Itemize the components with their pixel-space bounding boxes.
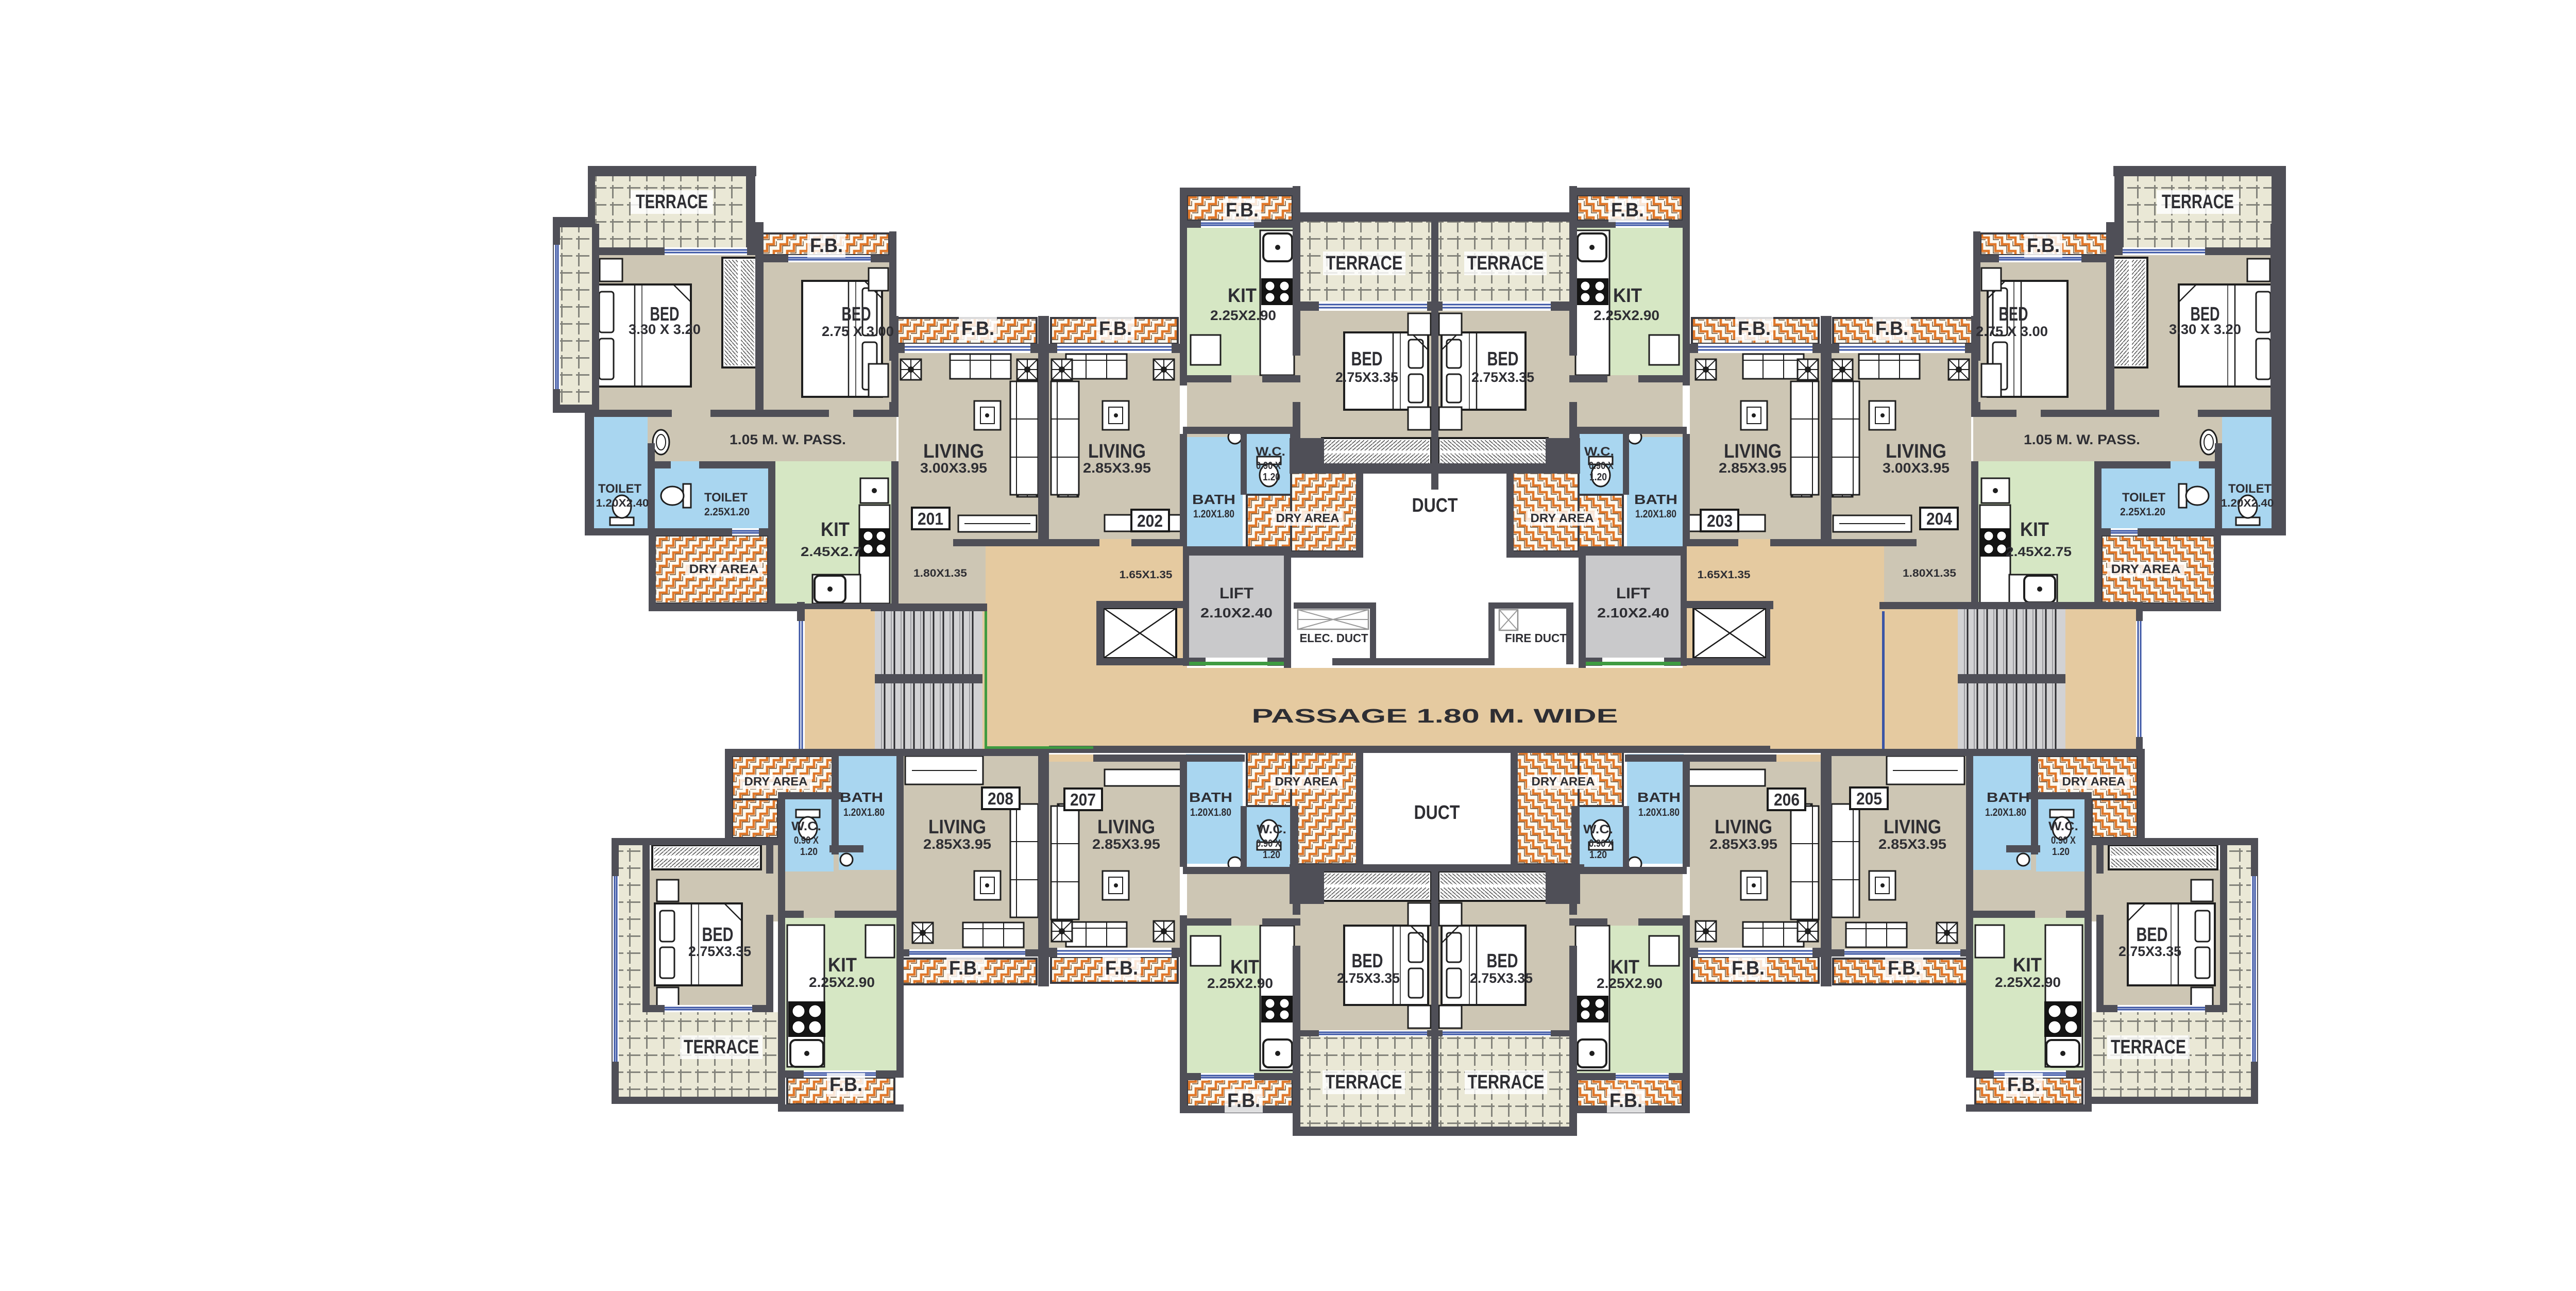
- svg-text:TERRACE: TERRACE: [1326, 253, 1403, 274]
- svg-text:LIVING: LIVING: [1715, 816, 1772, 838]
- svg-text:2.75X3.35: 2.75X3.35: [688, 944, 751, 959]
- svg-text:LIVING: LIVING: [1886, 441, 1946, 462]
- svg-text:DRY AREA: DRY AREA: [1532, 775, 1595, 788]
- svg-text:TOILET: TOILET: [2228, 482, 2272, 496]
- svg-text:TOILET: TOILET: [2122, 491, 2165, 505]
- svg-text:F.B.: F.B.: [1732, 958, 1765, 979]
- svg-text:1.05 M. W. PASS.: 1.05 M. W. PASS.: [730, 432, 846, 447]
- svg-text:1.20X2.40: 1.20X2.40: [2221, 497, 2274, 509]
- svg-text:0.90 X: 0.90 X: [1256, 460, 1281, 472]
- svg-text:1.05 M. W. PASS.: 1.05 M. W. PASS.: [2024, 432, 2140, 447]
- svg-text:DRY AREA: DRY AREA: [2111, 562, 2181, 576]
- svg-text:TERRACE: TERRACE: [2162, 191, 2234, 213]
- svg-text:1.20: 1.20: [2052, 846, 2070, 858]
- svg-text:3.00X3.95: 3.00X3.95: [1883, 460, 1950, 476]
- svg-text:KIT: KIT: [1611, 957, 1639, 978]
- svg-text:F.B.: F.B.: [2007, 1074, 2040, 1096]
- svg-text:204: 204: [1926, 509, 1953, 528]
- svg-text:2.75 X 3.00: 2.75 X 3.00: [822, 324, 894, 339]
- svg-text:KIT: KIT: [1230, 957, 1259, 978]
- svg-text:1.20X1.80: 1.20X1.80: [1193, 508, 1234, 520]
- svg-text:202: 202: [1137, 511, 1163, 530]
- svg-text:ELEC. DUCT: ELEC. DUCT: [1300, 631, 1368, 645]
- svg-text:TERRACE: TERRACE: [1326, 1071, 1402, 1093]
- svg-text:3.30 X 3.20: 3.30 X 3.20: [2169, 322, 2241, 337]
- svg-text:TERRACE: TERRACE: [1468, 1071, 1545, 1093]
- svg-text:1.65X1.35: 1.65X1.35: [1120, 569, 1173, 581]
- svg-text:BATH: BATH: [1189, 790, 1232, 805]
- svg-text:2.25X2.90: 2.25X2.90: [809, 975, 875, 990]
- svg-text:2.75X3.35: 2.75X3.35: [1470, 970, 1533, 986]
- svg-text:BED: BED: [842, 304, 871, 325]
- svg-text:TOILET: TOILET: [598, 482, 641, 496]
- svg-text:203: 203: [1707, 511, 1733, 530]
- svg-text:BATH: BATH: [1192, 492, 1235, 507]
- svg-text:0.90 X: 0.90 X: [2051, 835, 2076, 846]
- svg-text:TERRACE: TERRACE: [636, 191, 708, 213]
- svg-text:0.90 X: 0.90 X: [794, 835, 819, 846]
- svg-text:205: 205: [1856, 789, 1882, 808]
- svg-text:2.10X2.40: 2.10X2.40: [1200, 605, 1273, 621]
- svg-text:BED: BED: [1999, 304, 2028, 325]
- svg-text:207: 207: [1070, 790, 1096, 809]
- svg-text:W.C.: W.C.: [1583, 823, 1613, 836]
- svg-text:TERRACE: TERRACE: [2111, 1036, 2186, 1058]
- svg-text:2.25X1.20: 2.25X1.20: [704, 506, 750, 518]
- svg-text:3.30 X 3.20: 3.30 X 3.20: [629, 322, 701, 337]
- svg-text:2.75X3.35: 2.75X3.35: [1337, 970, 1400, 986]
- svg-text:TOILET: TOILET: [704, 491, 748, 505]
- svg-text:LIFT: LIFT: [1219, 585, 1253, 602]
- svg-text:2.25X2.90: 2.25X2.90: [1995, 975, 2061, 990]
- svg-text:F.B.: F.B.: [1611, 199, 1644, 221]
- svg-text:TERRACE: TERRACE: [1467, 253, 1544, 274]
- svg-text:2.85X3.95: 2.85X3.95: [1709, 836, 1777, 852]
- svg-text:F.B.: F.B.: [1888, 958, 1921, 979]
- svg-text:KIT: KIT: [2013, 954, 2042, 976]
- svg-text:2.25X2.90: 2.25X2.90: [1594, 308, 1659, 323]
- svg-text:LIVING: LIVING: [1088, 441, 1146, 462]
- svg-text:F.B.: F.B.: [949, 958, 982, 979]
- svg-text:LIVING: LIVING: [923, 441, 984, 462]
- svg-text:KIT: KIT: [2020, 519, 2049, 541]
- svg-text:1.20: 1.20: [800, 846, 818, 858]
- svg-text:2.25X1.20: 2.25X1.20: [2120, 506, 2165, 518]
- svg-text:2.85X3.95: 2.85X3.95: [1092, 836, 1160, 852]
- svg-text:W.C.: W.C.: [1256, 445, 1285, 459]
- svg-text:1.80X1.35: 1.80X1.35: [1903, 567, 1956, 579]
- svg-text:PASSAGE 1.80 M. WIDE: PASSAGE 1.80 M. WIDE: [1252, 706, 1618, 727]
- svg-text:DRY AREA: DRY AREA: [689, 562, 759, 576]
- svg-text:KIT: KIT: [821, 519, 850, 541]
- svg-text:2.10X2.40: 2.10X2.40: [1597, 605, 1669, 621]
- svg-text:KIT: KIT: [1228, 285, 1257, 307]
- svg-text:DRY AREA: DRY AREA: [1276, 511, 1340, 525]
- svg-text:W.C.: W.C.: [791, 819, 821, 833]
- svg-text:DRY AREA: DRY AREA: [744, 775, 808, 788]
- svg-text:W.C.: W.C.: [1257, 823, 1286, 836]
- svg-text:BED: BED: [1351, 348, 1383, 370]
- svg-text:LIVING: LIVING: [1097, 816, 1155, 838]
- svg-text:LIVING: LIVING: [928, 816, 986, 838]
- svg-text:BED: BED: [1487, 950, 1518, 972]
- svg-text:F.B.: F.B.: [810, 235, 843, 257]
- svg-text:1.20X1.80: 1.20X1.80: [1190, 807, 1231, 818]
- svg-text:2.45X2.75: 2.45X2.75: [2006, 545, 2072, 559]
- svg-text:F.B.: F.B.: [1227, 1090, 1260, 1112]
- svg-text:TERRACE: TERRACE: [684, 1036, 759, 1058]
- svg-text:3.00X3.95: 3.00X3.95: [920, 460, 987, 476]
- svg-text:FIRE DUCT: FIRE DUCT: [1505, 631, 1567, 645]
- svg-text:BED: BED: [1352, 950, 1383, 972]
- svg-text:1.20X1.80: 1.20X1.80: [1638, 807, 1680, 818]
- svg-text:DUCT: DUCT: [1412, 495, 1458, 516]
- svg-text:BATH: BATH: [1987, 790, 2030, 805]
- svg-text:F.B.: F.B.: [1105, 958, 1138, 979]
- svg-text:2.75X3.35: 2.75X3.35: [1335, 370, 1398, 385]
- svg-text:2.75X3.35: 2.75X3.35: [2119, 944, 2181, 959]
- svg-text:DRY AREA: DRY AREA: [2062, 775, 2126, 788]
- svg-text:2.85X3.95: 2.85X3.95: [1878, 836, 1946, 852]
- svg-text:2.25X2.90: 2.25X2.90: [1597, 976, 1663, 991]
- svg-text:LIFT: LIFT: [1616, 585, 1650, 602]
- svg-text:DRY AREA: DRY AREA: [1275, 775, 1338, 788]
- svg-text:1.20: 1.20: [1263, 849, 1280, 861]
- svg-text:F.B.: F.B.: [1875, 318, 1908, 340]
- svg-text:2.85X3.95: 2.85X3.95: [1719, 460, 1787, 476]
- svg-text:W.C.: W.C.: [1584, 445, 1614, 459]
- svg-text:LIVING: LIVING: [1724, 441, 1782, 462]
- svg-text:DRY AREA: DRY AREA: [1531, 511, 1594, 525]
- svg-text:F.B.: F.B.: [1099, 318, 1132, 340]
- svg-text:DUCT: DUCT: [1414, 802, 1460, 824]
- svg-text:LIVING: LIVING: [1884, 816, 1941, 838]
- svg-text:208: 208: [988, 789, 1013, 808]
- svg-text:1.20: 1.20: [1589, 472, 1607, 483]
- svg-text:BED: BED: [1487, 348, 1519, 370]
- svg-text:F.B.: F.B.: [1738, 318, 1771, 340]
- svg-text:1.20X1.80: 1.20X1.80: [843, 807, 885, 818]
- svg-text:2.85X3.95: 2.85X3.95: [923, 836, 991, 852]
- svg-text:BATH: BATH: [1634, 492, 1677, 507]
- svg-text:W.C.: W.C.: [2048, 819, 2078, 833]
- svg-text:1.20X2.40: 1.20X2.40: [596, 497, 649, 509]
- svg-text:F.B.: F.B.: [1609, 1090, 1642, 1112]
- svg-text:2.25X2.90: 2.25X2.90: [1210, 308, 1276, 323]
- svg-text:1.20: 1.20: [1263, 472, 1280, 483]
- svg-text:F.B.: F.B.: [829, 1074, 862, 1096]
- svg-text:1.20X1.80: 1.20X1.80: [1635, 508, 1676, 520]
- svg-text:2.25X2.90: 2.25X2.90: [1207, 976, 1273, 991]
- svg-text:F.B.: F.B.: [1226, 199, 1259, 221]
- svg-text:201: 201: [918, 509, 943, 528]
- svg-text:BATH: BATH: [840, 790, 883, 805]
- svg-text:KIT: KIT: [828, 954, 857, 976]
- svg-text:BED: BED: [2137, 924, 2168, 946]
- svg-text:BED: BED: [702, 924, 734, 946]
- svg-text:0.90 X: 0.90 X: [1589, 838, 1614, 849]
- svg-text:0.90 X: 0.90 X: [1256, 838, 1281, 849]
- svg-text:F.B.: F.B.: [2027, 235, 2060, 257]
- svg-text:BATH: BATH: [1637, 790, 1681, 805]
- svg-text:1.20X1.80: 1.20X1.80: [1985, 807, 2026, 818]
- svg-text:KIT: KIT: [1613, 285, 1642, 307]
- svg-text:0.90 X: 0.90 X: [1589, 460, 1614, 472]
- svg-text:2.45X2.7: 2.45X2.7: [801, 545, 861, 559]
- svg-text:1.20: 1.20: [1589, 849, 1607, 861]
- svg-text:2.75 X 3.00: 2.75 X 3.00: [1976, 324, 2048, 339]
- svg-text:206: 206: [1774, 790, 1800, 809]
- svg-text:1.65X1.35: 1.65X1.35: [1698, 569, 1751, 581]
- svg-text:F.B.: F.B.: [961, 318, 994, 340]
- svg-text:2.85X3.95: 2.85X3.95: [1083, 460, 1151, 476]
- svg-text:2.75X3.35: 2.75X3.35: [1471, 370, 1534, 385]
- svg-text:1.80X1.35: 1.80X1.35: [913, 567, 967, 579]
